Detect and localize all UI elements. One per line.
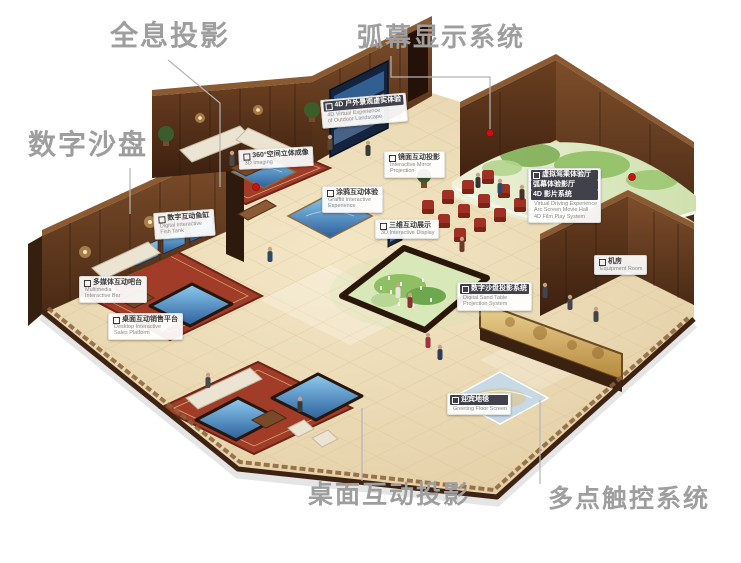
- callout-zh-text: 数字沙盘投影系统: [471, 285, 527, 293]
- checkbox-icon: [243, 153, 250, 160]
- label-multi-touch-system: 多点触控系统: [548, 487, 710, 512]
- callout-en-text: Projection System: [461, 301, 528, 307]
- callout-multimedia-bar: 多媒体互动吧台MultimediaInteractive Bar: [79, 276, 147, 303]
- callout-3d-interactive-display: 三维互动展示3D Interactive Display: [375, 219, 439, 239]
- callout-zh-text: 机房: [608, 258, 622, 266]
- checkbox-icon: [380, 223, 387, 230]
- callout-en-text: Equipment Room: [598, 266, 643, 272]
- callout-zh-text: 虚拟驾乘体验厅: [542, 171, 591, 179]
- label-desktop-interactive-projection: 桌面互动投影: [308, 483, 470, 508]
- callout-virtual-driving: 虚拟驾乘体验厅弧幕体验影厅4D 影片系统Virtual Driving Expe…: [528, 168, 601, 223]
- callout-greeting-floor-screen: 迎宾地毯Greeting Floor Screen: [447, 393, 511, 415]
- callout-zh-line: 数字沙盘投影系统: [460, 284, 529, 294]
- callout-zh-text: 4D 影片系统: [533, 191, 572, 199]
- checkbox-icon: [389, 155, 396, 162]
- callout-zh-text: 三维互动展示: [389, 222, 431, 230]
- callout-zh-line: 桌面互动销售平台: [112, 316, 179, 324]
- label-holographic-projection: 全息投影: [110, 22, 230, 50]
- callout-zh-line: 多媒体互动吧台: [83, 279, 143, 287]
- checkbox-icon: [533, 172, 540, 179]
- callout-graffiti-experience: 涂鸦互动体验Graffiti InteractiveExperience: [322, 186, 383, 213]
- checkbox-icon: [462, 286, 469, 293]
- callout-zh-line: 虚拟驾乘体验厅: [531, 170, 598, 180]
- callout-desktop-sales-platform: 桌面互动销售平台Desktop InteractiveSales Platfor…: [108, 313, 183, 340]
- callout-en-text: Greeting Floor Screen: [451, 406, 507, 412]
- callout-en-text: Sales Platform: [112, 330, 179, 336]
- callout-zh-text: 迎宾地毯: [461, 396, 489, 404]
- callout-zh-text: 镜面互动投影: [398, 154, 440, 162]
- callout-zh-text: 多媒体互动吧台: [93, 279, 142, 287]
- callout-zh-line: 迎宾地毯: [450, 395, 508, 405]
- checkbox-icon: [327, 190, 334, 197]
- callout-zh-text: 桌面互动销售平台: [122, 316, 178, 324]
- callout-zh-line: 4D 影片系统: [531, 190, 598, 200]
- callout-en-text: Arc Screen Movie Hall: [532, 207, 597, 213]
- callout-zh-text: 弧幕体验影厅: [533, 181, 575, 189]
- callout-en-text: Projection: [388, 168, 441, 174]
- callout-mirror-projection: 镜面互动投影Interactive MirrorProjection: [384, 151, 445, 178]
- callout-en-text: Experience: [326, 203, 379, 209]
- callout-en-text: 3D Interactive Display: [379, 230, 435, 236]
- callout-digital-fish-tank: 数字互动鱼缸Digital InteractiveFish Tank: [153, 209, 216, 240]
- callout-zh-line: 弧幕体验影厅: [531, 180, 598, 190]
- label-digital-sand-table: 数字沙盘: [28, 131, 148, 159]
- checkbox-icon: [325, 102, 333, 110]
- checkbox-icon: [158, 216, 165, 223]
- callout-en-text: 4D Film Play System: [532, 214, 597, 220]
- checkbox-icon: [84, 280, 91, 287]
- callout-zh-line: 镜面互动投影: [388, 154, 441, 162]
- callout-zh-text: 涂鸦互动体验: [336, 189, 378, 197]
- exhibition-hall-infographic: 全息投影弧幕显示系统数字沙盘桌面互动投影多点触控系统4D 户外景观虚实体验4D …: [0, 0, 741, 563]
- checkbox-icon: [599, 259, 606, 266]
- callout-en-text: Interactive Bar: [83, 293, 143, 299]
- callout-zh-line: 三维互动展示: [379, 222, 435, 230]
- label-arc-screen-display-system: 弧幕显示系统: [357, 24, 525, 50]
- checkbox-icon: [113, 317, 120, 324]
- callout-equipment-room: 机房Equipment Room: [594, 255, 647, 275]
- callout-sand-table-projection: 数字沙盘投影系统Digital Sand TableProjection Sys…: [457, 282, 532, 311]
- checkbox-icon: [452, 397, 459, 404]
- callout-zh-line: 涂鸦互动体验: [326, 189, 379, 197]
- callout-zh-line: 机房: [598, 258, 643, 266]
